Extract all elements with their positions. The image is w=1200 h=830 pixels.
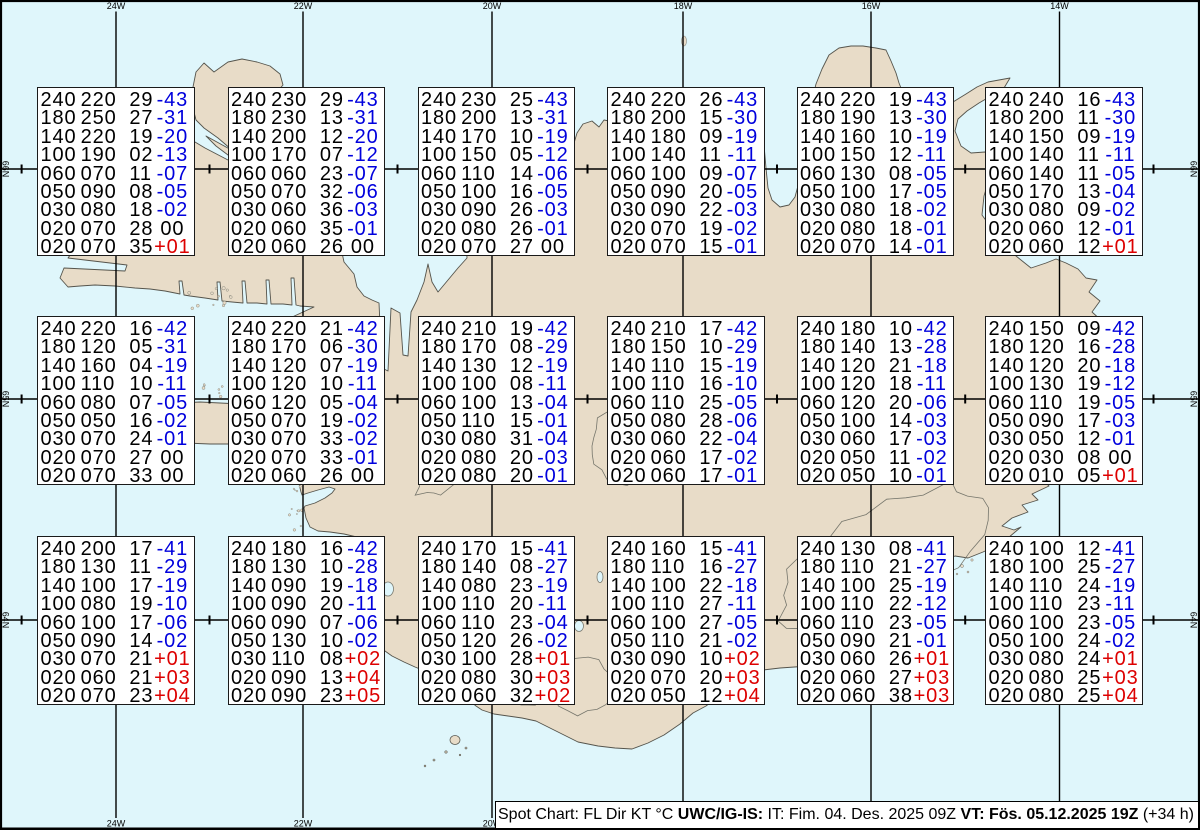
svg-text:22W: 22W: [294, 819, 313, 829]
svg-text:24W: 24W: [107, 1, 126, 11]
svg-text:20W: 20W: [483, 1, 502, 11]
svg-text:22W: 22W: [294, 1, 313, 11]
svg-text:65N: 65N: [1189, 391, 1199, 408]
svg-text:16W: 16W: [862, 1, 881, 11]
svg-text:66N: 66N: [1189, 161, 1199, 178]
svg-text:64N: 64N: [1189, 612, 1199, 629]
svg-text:18W: 18W: [674, 1, 693, 11]
svg-text:14W: 14W: [1050, 1, 1069, 11]
svg-text:24W: 24W: [107, 819, 126, 829]
